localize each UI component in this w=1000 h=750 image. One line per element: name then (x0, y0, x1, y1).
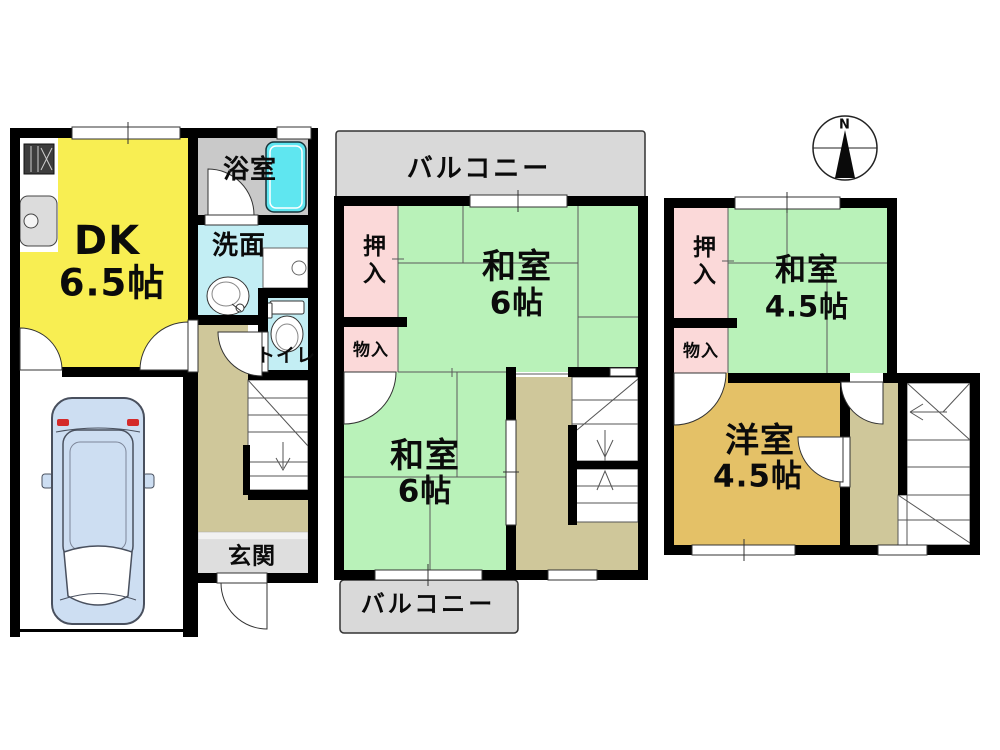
washbasin-icon (207, 277, 249, 315)
label-oshiire-3f: 押入 (690, 235, 713, 289)
sink-icon (20, 196, 57, 246)
label-youshitsu-size: 4.5帖 (713, 462, 803, 493)
door-opening (548, 570, 597, 580)
label-washitsu-upper-size: 6帖 (490, 289, 545, 320)
stairs-2f (572, 377, 638, 522)
stairs-3f (898, 383, 970, 545)
door-opening (878, 545, 927, 555)
label-oshiire-2f: 押入 (360, 234, 383, 288)
hallway-2f-lower (568, 522, 638, 570)
car-taillight-left (57, 419, 69, 426)
label-compass-north: N (839, 119, 851, 132)
hallway-2f (516, 377, 572, 570)
label-washitsu-upper-name: 和室 (482, 250, 552, 284)
door-arc-entrance (221, 583, 267, 629)
door-opening (610, 368, 636, 376)
window-opening (72, 127, 180, 139)
stairs-1f (248, 380, 308, 490)
window-opening (277, 127, 311, 139)
garage-door-line (20, 629, 183, 632)
label-entrance: 玄関 (228, 546, 276, 569)
label-bathroom: 浴室 (223, 157, 277, 183)
label-toilet: トイレ (256, 347, 316, 366)
door-opening (188, 320, 198, 372)
label-balcony-bottom: バルコニー (361, 592, 496, 616)
washing-machine-pan-icon (263, 248, 308, 288)
label-washitsu-3f-size: 4.5帖 (765, 293, 849, 322)
entrance-step (198, 532, 308, 540)
stove-icon (24, 144, 54, 174)
floor-2f (334, 131, 648, 633)
floorplan-drawing (0, 0, 1000, 750)
label-monoire-3f: 物入 (683, 344, 719, 361)
label-dk-name: DK (74, 221, 140, 261)
car-icon (42, 398, 154, 624)
door-opening (205, 215, 258, 225)
label-washitsu-3f-name: 和室 (775, 256, 839, 287)
label-washitsu-lower-size: 6帖 (398, 477, 453, 508)
label-monoire-2f: 物入 (353, 343, 389, 360)
label-dk-size: 6.5帖 (59, 265, 166, 302)
floorplan-canvas: DK 6.5帖 浴室 洗面 トイレ 玄関 バルコニー 押入 物入 和室 6帖 和… (0, 0, 1000, 750)
label-washroom: 洗面 (212, 233, 266, 259)
car-taillight-right (127, 419, 139, 426)
door-opening (217, 573, 267, 583)
label-balcony-top: バルコニー (407, 156, 551, 182)
label-youshitsu-name: 洋室 (725, 424, 795, 458)
label-washitsu-lower-name: 和室 (390, 439, 460, 473)
hallway-1f-lower (248, 500, 308, 532)
